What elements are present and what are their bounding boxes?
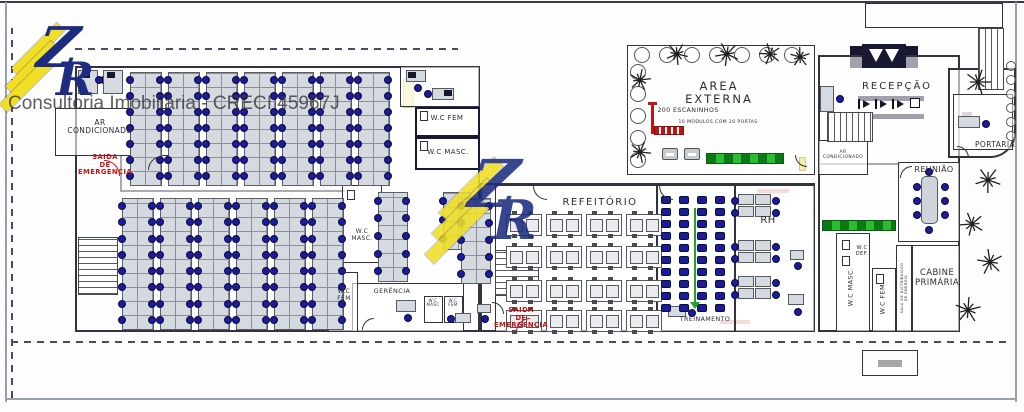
dining-table: [590, 315, 603, 328]
office-chair: [300, 300, 308, 308]
dining-chair: [512, 300, 517, 304]
dining-chair: [552, 211, 557, 215]
label-wc-masc-mid: W.C MASC.: [351, 229, 372, 242]
rh-desk: [755, 252, 771, 263]
label-portaria: PORTARIA: [975, 141, 1015, 149]
office-chair: [202, 76, 210, 84]
dining-chair: [528, 211, 533, 215]
office-chair: [731, 291, 739, 299]
desk: [788, 294, 804, 305]
office-chair: [439, 235, 447, 243]
dining-chair: [512, 266, 517, 270]
office-chair: [354, 156, 362, 164]
office-chair: [232, 172, 240, 180]
dining-table: [550, 315, 563, 328]
office-chair: [308, 156, 316, 164]
training-chair: [715, 196, 725, 204]
office-chair: [374, 232, 382, 240]
office-chair: [772, 279, 780, 287]
office-chair: [262, 316, 270, 324]
monitor-icon: [107, 72, 115, 78]
dining-table: [606, 315, 619, 328]
office-chair: [308, 172, 316, 180]
dining-table-unit: [546, 280, 582, 302]
training-chair: [679, 208, 689, 216]
desk: [790, 250, 804, 260]
monitor-icon: [82, 72, 90, 78]
dining-table: [510, 251, 523, 264]
office-chair: [731, 197, 739, 205]
dining-chair: [568, 243, 573, 247]
office-chair: [308, 124, 316, 132]
monitor-icon: [408, 72, 416, 78]
dining-table: [606, 219, 619, 232]
office-chair: [354, 172, 362, 180]
office-chair: [156, 300, 164, 308]
dining-chair: [608, 300, 613, 304]
room-wc-fixture: [842, 256, 850, 266]
office-chair: [194, 251, 202, 259]
dining-table: [630, 315, 643, 328]
office-chair: [186, 300, 194, 308]
rh-desk: [738, 206, 754, 217]
office-chair: [202, 172, 210, 180]
dining-table-unit: [586, 214, 622, 236]
office-chair: [384, 140, 392, 148]
office-chair: [262, 235, 270, 243]
room-wc-fixture: [842, 240, 850, 250]
dining-chair: [632, 330, 637, 334]
label-wc-masc-right: W.C MASC.: [847, 268, 854, 307]
training-chair: [661, 244, 671, 252]
office-chair: [384, 108, 392, 116]
drawing-frame-line: [1015, 2, 1017, 402]
shrub-plant: [634, 47, 650, 63]
office-chair: [194, 156, 202, 164]
office-chair: [278, 156, 286, 164]
brand-watermark-text: Consultoria Imobiliária - CRECI 45967J: [8, 93, 340, 115]
office-chair: [731, 279, 739, 287]
tree-icon: [666, 43, 688, 65]
office-chair: [316, 140, 324, 148]
drawing-frame-line: [5, 398, 1017, 400]
tree-icon: [955, 297, 981, 323]
rh-desk: [755, 276, 771, 287]
training-chair: [697, 196, 707, 204]
training-chair: [679, 280, 689, 288]
office-chair: [240, 76, 248, 84]
dining-table: [590, 285, 603, 298]
bench: [662, 148, 678, 160]
rh-desk: [738, 194, 754, 205]
desk: [455, 313, 471, 323]
dining-table: [510, 219, 523, 232]
office-chair: [278, 124, 286, 132]
office-chair: [772, 291, 780, 299]
label-cabine-primaria: CABINE PRIMÁRIA: [915, 269, 959, 288]
meeting-chair: [941, 183, 949, 191]
office-chair: [232, 156, 240, 164]
office-chair: [270, 124, 278, 132]
dining-chair: [568, 211, 573, 215]
office-chair: [126, 76, 134, 84]
office-chair: [354, 108, 362, 116]
dining-table: [550, 251, 563, 264]
dining-table-unit: [546, 310, 582, 332]
tree-icon: [629, 141, 651, 163]
desk: [958, 116, 980, 128]
rh-desk: [738, 252, 754, 263]
dining-chair: [608, 307, 613, 311]
dining-chair: [592, 211, 597, 215]
dining-table-unit: [626, 310, 662, 332]
label-sala-energia: SALA DE DISTRIBUIÇÃO DE ENERGIA: [900, 263, 908, 313]
training-chair: [661, 304, 671, 312]
dining-chair: [568, 234, 573, 238]
office-chair: [338, 251, 346, 259]
label-treinamento: TREINAMENTO: [680, 316, 730, 323]
office-chair: [156, 124, 164, 132]
office-chair: [338, 235, 346, 243]
office-chair: [156, 172, 164, 180]
room-equipment-box: [862, 350, 918, 376]
turnstile-bar: [858, 99, 860, 109]
office-chair: [262, 251, 270, 259]
label-area-externa: AREA EXTERNA: [685, 80, 753, 106]
office-chair: [308, 140, 316, 148]
office-chair: [316, 124, 324, 132]
office-chair: [164, 76, 172, 84]
training-chair: [715, 232, 725, 240]
dining-table: [550, 285, 563, 298]
training-chair: [715, 304, 725, 312]
tree-icon: [975, 167, 1001, 193]
training-chair: [679, 244, 689, 252]
turnstile-gate-box: [910, 98, 920, 108]
training-chair: [679, 196, 689, 204]
office-chair: [232, 316, 240, 324]
office-chair: [374, 250, 382, 258]
office-chair: [240, 172, 248, 180]
office-chair: [457, 236, 465, 244]
training-chair: [715, 256, 725, 264]
dining-chair: [592, 307, 597, 311]
dining-table-unit: [586, 246, 622, 268]
office-chair: [270, 172, 278, 180]
dining-chair: [552, 300, 557, 304]
dining-chair: [552, 330, 557, 334]
dining-chair: [648, 307, 653, 311]
office-chair: [194, 300, 202, 308]
office-chair: [194, 124, 202, 132]
office-chair: [224, 251, 232, 259]
label-saida-emergencia-1: SAIDA DE EMERGENCIA: [78, 154, 132, 177]
locker-strip-green: [822, 220, 896, 231]
office-chair: [194, 316, 202, 324]
office-chair: [148, 300, 156, 308]
office-chair: [836, 95, 844, 103]
turnstile-arrow-icon: [863, 100, 870, 108]
office-chair: [485, 270, 493, 278]
dining-chair: [592, 266, 597, 270]
meeting-chair: [925, 226, 933, 234]
tree-icon: [629, 69, 651, 91]
label-wc-fem-upper: W.C FEM: [431, 115, 464, 123]
dining-chair: [632, 211, 637, 215]
dining-table: [526, 251, 539, 264]
label-ar-cond-small: AR CONDICIONADO: [823, 151, 863, 161]
office-chair: [126, 140, 134, 148]
training-chair: [697, 256, 707, 264]
office-chair: [772, 243, 780, 251]
dining-chair: [552, 266, 557, 270]
office-chair: [156, 235, 164, 243]
logo-stripe: [11, 23, 64, 76]
room-wc-fixture: [347, 190, 355, 200]
office-chair: [457, 253, 465, 261]
dining-table: [566, 285, 579, 298]
dining-chair: [608, 330, 613, 334]
office-chair: [384, 156, 392, 164]
office-chair: [772, 197, 780, 205]
meeting-chair: [913, 183, 921, 191]
dining-table: [510, 285, 523, 298]
office-chair: [240, 156, 248, 164]
office-chair: [118, 316, 126, 324]
meeting-chair: [913, 197, 921, 205]
dining-chair: [608, 234, 613, 238]
site-boundary-dashed-line: [75, 48, 458, 50]
office-chair: [308, 300, 316, 308]
office-chair: [374, 197, 382, 205]
dining-chair: [592, 243, 597, 247]
office-chair: [164, 124, 172, 132]
office-chair: [232, 235, 240, 243]
office-chair: [485, 253, 493, 261]
dining-table-unit: [626, 280, 662, 302]
staircase: [827, 112, 873, 142]
office-chair: [232, 300, 240, 308]
label-rh: RH: [760, 215, 775, 226]
dining-table: [566, 219, 579, 232]
office-chair: [194, 172, 202, 180]
dining-table: [590, 219, 603, 232]
tree-icon: [977, 249, 1003, 275]
dining-table-unit: [546, 214, 582, 236]
office-chair: [354, 124, 362, 132]
entrance-arrow-icon: [885, 49, 899, 62]
site-boundary-dashed-line: [11, 341, 1012, 343]
dining-chair: [648, 234, 653, 238]
label-wc-masc-upper: W.C MASC.: [427, 149, 468, 157]
dining-chair: [552, 234, 557, 238]
dining-chair: [512, 277, 517, 281]
monitor-icon: [444, 90, 452, 96]
meeting-chair: [941, 197, 949, 205]
dining-table: [566, 251, 579, 264]
office-chair: [457, 270, 465, 278]
office-chair: [224, 235, 232, 243]
office-chair: [384, 124, 392, 132]
training-chair: [679, 232, 689, 240]
office-chair: [346, 76, 354, 84]
dining-table: [630, 285, 643, 298]
office-chair: [300, 316, 308, 324]
dining-chair: [512, 234, 517, 238]
office-chair: [354, 76, 362, 84]
training-chair: [661, 232, 671, 240]
dining-chair: [608, 277, 613, 281]
dining-table: [646, 251, 659, 264]
meeting-chair: [941, 211, 949, 219]
office-chair: [270, 156, 278, 164]
office-chair: [270, 235, 278, 243]
office-chair: [402, 250, 410, 258]
tree-icon: [965, 69, 991, 95]
office-chair: [338, 316, 346, 324]
desk: [820, 86, 834, 112]
dining-chair: [592, 300, 597, 304]
office-chair: [118, 300, 126, 308]
office-chair: [346, 156, 354, 164]
office-chair: [232, 124, 240, 132]
office-chair: [794, 262, 802, 270]
main-entrance-marker: [862, 44, 906, 68]
rh-desk: [755, 288, 771, 299]
office-chair: [346, 92, 354, 100]
dining-chair: [528, 266, 533, 270]
office-chair: [270, 76, 278, 84]
office-chair: [118, 235, 126, 243]
training-chair: [715, 208, 725, 216]
dining-table: [550, 219, 563, 232]
dining-chair: [528, 243, 533, 247]
rh-desk: [738, 288, 754, 299]
label-wc-small-fem: W.C FEM: [448, 299, 457, 308]
label-reuniao: REUNIÃO: [914, 166, 953, 175]
rh-desk: [738, 276, 754, 287]
office-chair: [485, 236, 493, 244]
dining-chair: [608, 243, 613, 247]
training-chair: [661, 220, 671, 228]
office-chair: [118, 251, 126, 259]
training-chair: [679, 268, 689, 276]
dining-table: [646, 285, 659, 298]
office-chair: [156, 76, 164, 84]
dining-table: [646, 219, 659, 232]
dining-chair: [568, 277, 573, 281]
dining-table: [646, 315, 659, 328]
office-chair: [186, 316, 194, 324]
label-ar-condicionado: AR CONDICIONADO: [67, 119, 132, 136]
label-wc-def: W.C DEF.: [856, 246, 869, 258]
dining-chair: [552, 277, 557, 281]
dining-table-unit: [506, 246, 542, 268]
office-chair: [194, 140, 202, 148]
training-chair: [661, 268, 671, 276]
dining-chair: [648, 330, 653, 334]
floorplan-canvas: AR CONDICIONADOSAIDA DE EMERGENCIAW.C FE…: [0, 0, 1024, 412]
training-chair: [697, 244, 707, 252]
rh-desk: [755, 194, 771, 205]
dining-chair: [648, 300, 653, 304]
dining-chair: [608, 266, 613, 270]
office-chair: [148, 316, 156, 324]
training-chair: [661, 280, 671, 288]
dining-table-unit: [506, 214, 542, 236]
dining-table: [526, 219, 539, 232]
training-chair: [679, 256, 689, 264]
tree-icon: [790, 47, 810, 67]
lockers-pointer-hook: [648, 102, 657, 105]
office-chair: [95, 76, 103, 84]
dining-chair: [528, 234, 533, 238]
label-gerencia: GERÊNCIA: [374, 288, 411, 295]
office-chair: [202, 140, 210, 148]
training-chair: [697, 208, 707, 216]
office-chair: [278, 172, 286, 180]
office-chair: [731, 243, 739, 251]
dining-chair: [648, 211, 653, 215]
shrub-plant: [1006, 103, 1016, 113]
dining-table-unit: [626, 214, 662, 236]
label-modulos: 10 MODULOS COM 20 PORTAS: [678, 120, 757, 125]
office-chair: [148, 235, 156, 243]
label-saida-emergencia-2: SAIDA DE EMERGENCIA: [494, 307, 548, 330]
dining-chair: [552, 243, 557, 247]
bench: [684, 148, 700, 160]
dining-chair: [648, 243, 653, 247]
dining-table-unit: [546, 246, 582, 268]
training-chair: [715, 268, 725, 276]
dining-table-unit: [586, 310, 622, 332]
dining-table: [526, 285, 539, 298]
office-chair: [270, 316, 278, 324]
office-chair: [982, 120, 990, 128]
office-chair: [424, 90, 432, 98]
office-chair: [186, 235, 194, 243]
dining-chair: [632, 266, 637, 270]
rh-desk: [738, 240, 754, 251]
shrub-plant: [1006, 89, 1016, 99]
office-chair: [346, 172, 354, 180]
office-chair: [481, 315, 489, 323]
dining-chair: [632, 234, 637, 238]
office-chair: [232, 76, 240, 84]
office-chair: [270, 300, 278, 308]
training-chair: [661, 256, 671, 264]
dining-chair: [648, 277, 653, 281]
room-wc-fixture: [420, 111, 428, 121]
office-chair: [278, 76, 286, 84]
tree-icon: [715, 42, 739, 66]
training-chair: [679, 220, 689, 228]
shrub-plant: [1006, 117, 1016, 127]
office-chair: [346, 140, 354, 148]
office-chair: [300, 235, 308, 243]
office-chair: [731, 209, 739, 217]
room-entry-canopy: [865, 3, 1003, 28]
drawing-frame-line: [5, 2, 7, 402]
dining-chair: [552, 307, 557, 311]
training-chair: [715, 292, 725, 300]
office-chair: [402, 197, 410, 205]
training-chair: [661, 208, 671, 216]
logo-stripe: [5, 41, 58, 94]
training-chair: [715, 220, 725, 228]
room-cabine-primaria: [912, 245, 960, 332]
dining-table-unit: [586, 280, 622, 302]
